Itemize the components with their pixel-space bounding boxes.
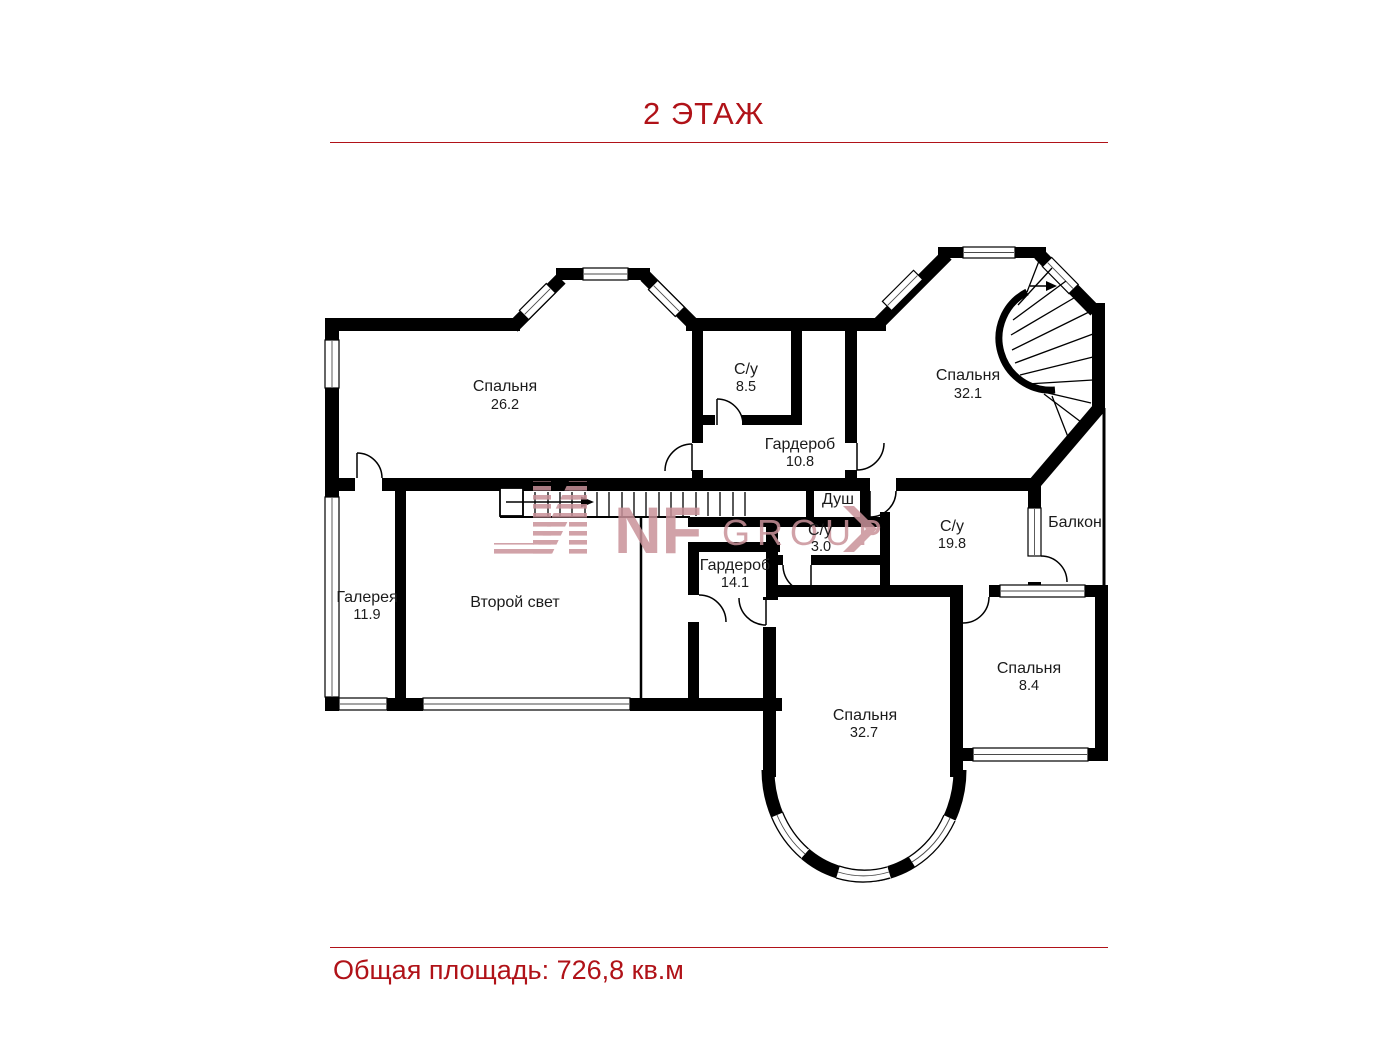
door-bedroom4 — [963, 597, 989, 623]
svg-text:19.8: 19.8 — [938, 536, 966, 552]
room-label-bedroom-4: Спальня 8.4 — [997, 660, 1061, 694]
window-balcony-wall — [1028, 508, 1041, 556]
room-label-bedroom-3: Спальня 32.7 — [833, 707, 897, 741]
door-gallery-bedroom1 — [357, 453, 382, 478]
window-bedroom4-top — [1000, 585, 1085, 597]
room-label-bathroom-3: С/у 19.8 — [938, 518, 966, 552]
window-left-upper — [325, 340, 339, 388]
svg-text:32.7: 32.7 — [850, 725, 878, 741]
door-wardrobe1-left — [665, 444, 692, 471]
room-label-balcony: Балкон — [1048, 514, 1102, 531]
svg-text:8.5: 8.5 — [736, 379, 756, 395]
svg-text:11.9: 11.9 — [353, 607, 380, 623]
svg-text:14.1: 14.1 — [721, 575, 749, 591]
svg-text:Балкон: Балкон — [1048, 514, 1102, 531]
svg-text:Гардероб: Гардероб — [700, 557, 770, 574]
door-bedroom3 — [739, 598, 766, 625]
window-octagon-top — [963, 247, 1015, 258]
window-bay2-right — [909, 815, 955, 867]
window-void-bottom — [423, 698, 630, 710]
floor-plan-canvas: NF GROUP Спальня 26.2 С/у 8.5 Гардероб 1… — [0, 0, 1400, 1050]
svg-text:Спальня: Спальня — [997, 660, 1061, 677]
svg-text:С/у: С/у — [734, 361, 758, 378]
svg-text:Второй свет: Второй свет — [470, 594, 560, 611]
winder-direction-arrow — [1030, 281, 1057, 291]
svg-text:8.4: 8.4 — [1019, 678, 1039, 694]
room-label-wardrobe-2: Гардероб 14.1 — [700, 557, 770, 591]
room-label-bathroom-1: С/у 8.5 — [734, 361, 758, 395]
svg-text:С/у: С/у — [808, 522, 832, 539]
svg-text:Спальня: Спальня — [833, 707, 897, 724]
window-bay1-right — [648, 280, 684, 316]
svg-text:Душ: Душ — [822, 491, 854, 508]
window-bay2-bottom — [836, 866, 890, 882]
room-label-gallery: Галерея 11.9 — [336, 589, 397, 623]
door-wardrobe2 — [699, 595, 726, 622]
room-label-wardrobe-1: Гардероб 10.8 — [765, 436, 835, 470]
door-bathroom1 — [717, 399, 743, 425]
svg-text:Спальня: Спальня — [473, 378, 537, 395]
svg-text:26.2: 26.2 — [491, 397, 519, 413]
watermark-letters: NF — [614, 493, 702, 567]
room-label-void: Второй свет — [470, 594, 560, 611]
room-label-shower: Душ — [822, 491, 854, 508]
svg-text:32.1: 32.1 — [954, 386, 982, 402]
svg-text:Гардероб: Гардероб — [765, 436, 835, 453]
room-label-bedroom-1: Спальня 26.2 — [473, 378, 537, 413]
floor-plan-page: 2 ЭТАЖ Общая площадь: 726,8 кв.м — [0, 0, 1400, 1050]
svg-text:3.0: 3.0 — [811, 539, 831, 555]
window-bay1-left — [519, 284, 555, 320]
svg-text:Галерея: Галерея — [336, 589, 397, 606]
svg-text:Спальня: Спальня — [936, 367, 1000, 384]
door-balcony — [1041, 556, 1067, 582]
window-bay2-left — [772, 812, 809, 858]
svg-text:10.8: 10.8 — [786, 454, 814, 470]
room-label-bedroom-2: Спальня 32.1 — [936, 367, 1000, 402]
svg-text:С/у: С/у — [940, 518, 964, 535]
door-wardrobe1-right — [857, 443, 884, 470]
window-gallery-bottom — [339, 698, 387, 710]
window-bedroom4-bottom — [973, 748, 1088, 761]
room-label-bathroom-2: С/у 3.0 — [808, 522, 832, 555]
window-bay1-top — [583, 268, 628, 280]
